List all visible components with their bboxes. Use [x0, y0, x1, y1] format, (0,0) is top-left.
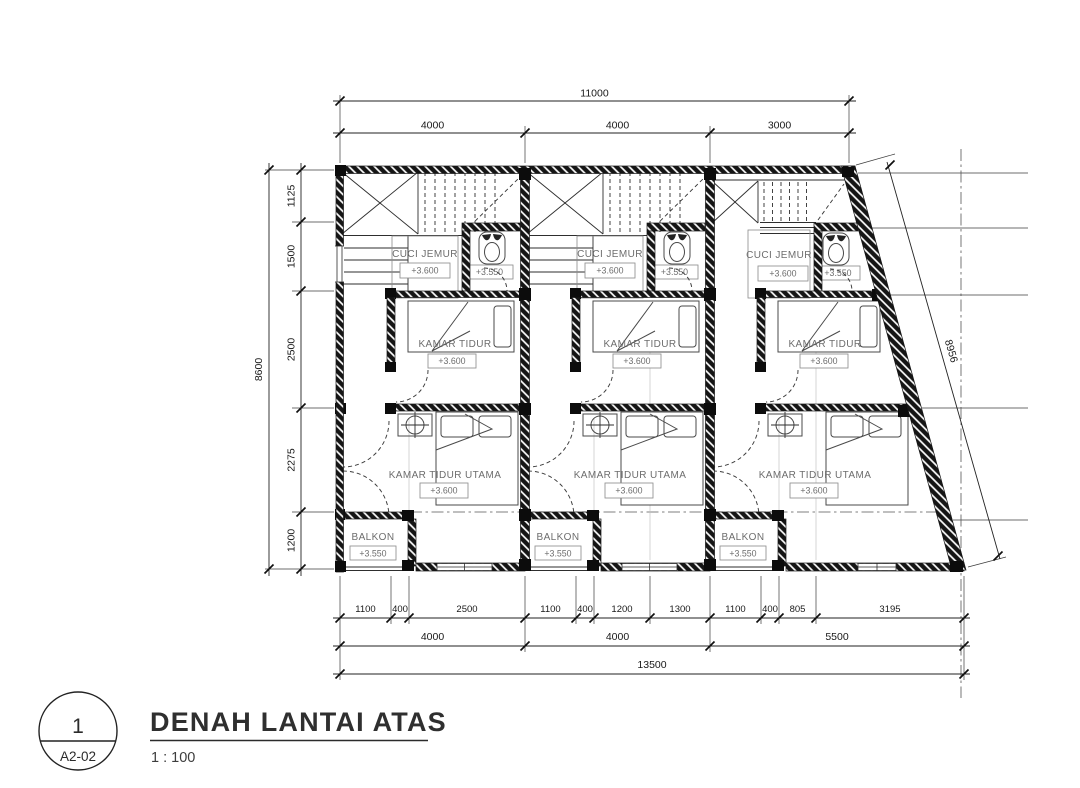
column-block — [335, 165, 346, 176]
dim-text-bottom-bay: 5500 — [825, 631, 849, 643]
column-block — [950, 561, 963, 572]
column-block — [772, 510, 784, 521]
wall — [712, 512, 778, 519]
dim-text-left-seg: 1125 — [286, 185, 298, 208]
wall — [575, 291, 710, 298]
wall — [760, 404, 908, 411]
column-block — [385, 403, 396, 414]
door-swing — [528, 421, 574, 467]
column-block — [842, 167, 854, 177]
wall — [572, 298, 580, 366]
wall — [706, 170, 715, 568]
wall — [647, 223, 705, 231]
door-swing — [713, 471, 759, 517]
squat-toilet-icon — [482, 234, 491, 240]
room-label-cuci-jemur: CUCI JEMUR — [746, 250, 812, 261]
dim-text-bottom-seg: 1100 — [725, 604, 745, 615]
dim-text-bottom-seg: 1300 — [669, 604, 690, 615]
level-text: +3.550 — [476, 267, 503, 277]
room-label-kamar-tidur: KAMAR TIDUR — [788, 339, 861, 350]
room-label-balkon: BALKON — [352, 532, 395, 543]
level-text: +3.600 — [615, 486, 642, 496]
column-block — [519, 559, 531, 571]
dim-text-left-seg: 1200 — [286, 529, 298, 553]
title-block: 1 A2-02 DENAH LANTAI ATAS 1 : 100 — [39, 692, 447, 770]
dim-text-bottom-bay: 4000 — [606, 631, 630, 643]
stair-direction-line — [818, 184, 844, 220]
room-label-cuci-jemur: CUCI JEMUR — [577, 249, 643, 260]
door-swing — [343, 421, 389, 467]
room-label-cuci-jemur: CUCI JEMUR — [392, 249, 458, 260]
room-label-balkon: BALKON — [722, 532, 765, 543]
level-text: +3.600 — [769, 269, 796, 279]
squat-toilet-icon — [829, 244, 844, 263]
level-text: +3.600 — [810, 356, 837, 366]
column-block — [704, 168, 716, 180]
level-text: +3.550 — [661, 267, 688, 277]
room-label-balkon: BALKON — [537, 532, 580, 543]
room-label-kamar-tidur-utama: KAMAR TIDUR UTAMA — [574, 470, 687, 481]
column-block — [519, 403, 531, 415]
drawing-sheet: CUCI JEMUR+3.600+3.550KAMAR TIDUR+3.600K… — [0, 0, 1080, 788]
wall — [814, 223, 858, 231]
squat-toilet-icon — [837, 235, 846, 241]
wall — [462, 223, 520, 231]
squat-toilet-icon — [485, 243, 500, 262]
dim-text-bottom-seg: 400 — [392, 604, 408, 615]
wall — [593, 519, 601, 566]
column-block — [519, 168, 531, 180]
column-block — [587, 560, 599, 571]
dim-text-bottom-seg: 400 — [762, 604, 778, 615]
wall — [778, 519, 786, 566]
window — [335, 246, 344, 282]
wall — [527, 512, 593, 519]
wall — [390, 404, 525, 411]
squat-toilet-icon — [826, 235, 835, 241]
column-block — [519, 288, 531, 300]
column-block — [704, 288, 716, 300]
room-label-kamar-tidur-utama: KAMAR TIDUR UTAMA — [389, 470, 502, 481]
drawing-title: DENAH LANTAI ATAS — [150, 707, 447, 737]
door-swing — [396, 370, 428, 402]
door-swing — [528, 471, 574, 517]
wall — [387, 298, 395, 366]
level-text: +3.550 — [824, 268, 851, 278]
room-label-kamar-tidur: KAMAR TIDUR — [603, 339, 676, 350]
wall — [336, 166, 855, 174]
wall — [342, 512, 408, 519]
dim-text-bottom-bay: 4000 — [421, 631, 445, 643]
column-block — [385, 362, 396, 372]
level-text: +3.600 — [411, 266, 438, 276]
door-swing — [343, 471, 389, 517]
dim-text-bottom-seg: 1100 — [355, 604, 375, 615]
column-block — [402, 510, 414, 521]
squat-toilet-icon — [678, 234, 687, 240]
wall — [575, 404, 710, 411]
dim-text-bottom-seg: 1200 — [611, 604, 632, 615]
squat-toilet-icon — [493, 234, 502, 240]
column-block — [704, 559, 716, 571]
dim-text-bottom-seg: 805 — [790, 604, 806, 615]
door-swing — [713, 421, 759, 467]
wall — [408, 519, 416, 566]
column-block — [402, 560, 414, 571]
wall — [760, 291, 880, 298]
column-block — [570, 403, 581, 414]
wall — [336, 166, 344, 572]
room-cuci-jemur — [748, 230, 810, 298]
detail-number: 1 — [72, 715, 84, 738]
dim-text-bottom-seg: 400 — [577, 604, 593, 615]
dimension-annotations: 1100040004000300011251500250022751200860… — [253, 88, 1003, 679]
rooms-and-furniture: CUCI JEMUR+3.600+3.550KAMAR TIDUR+3.600K… — [342, 172, 908, 571]
door-swing — [766, 370, 798, 402]
wall — [757, 298, 765, 366]
dim-text-top-total: 11000 — [580, 88, 609, 100]
column-block — [755, 403, 766, 414]
dim-text-bottom-seg: 3195 — [879, 604, 900, 615]
room-label-kamar-tidur: KAMAR TIDUR — [418, 339, 491, 350]
level-text: +3.550 — [359, 549, 386, 559]
squat-toilet-icon — [670, 243, 685, 262]
dim-text-top-bay: 4000 — [421, 120, 445, 132]
wall — [521, 170, 530, 568]
walls — [335, 165, 966, 572]
level-text: +3.600 — [623, 356, 650, 366]
column-block — [755, 362, 766, 372]
column-block — [587, 510, 599, 521]
column-block — [335, 561, 346, 572]
dim-text-bottom-seg: 1100 — [540, 604, 560, 615]
level-text: +3.550 — [544, 549, 571, 559]
column-block — [570, 362, 581, 372]
dim-text-bottom-seg: 2500 — [456, 604, 477, 615]
dim-text-bottom-total: 13500 — [637, 659, 666, 671]
level-text: +3.550 — [729, 549, 756, 559]
floor-plan-drawing: CUCI JEMUR+3.600+3.550KAMAR TIDUR+3.600K… — [0, 0, 1080, 788]
squat-toilet-icon — [667, 234, 676, 240]
column-block — [519, 509, 531, 521]
slanted-wall — [841, 166, 966, 570]
drawing-scale: 1 : 100 — [151, 750, 195, 766]
level-text: +3.600 — [596, 266, 623, 276]
sheet-code: A2-02 — [60, 749, 96, 764]
dim-text-left-total: 8600 — [253, 358, 265, 382]
door-swing — [581, 370, 613, 402]
level-text: +3.600 — [430, 486, 457, 496]
extension-line — [856, 154, 895, 165]
dim-tick — [886, 161, 895, 170]
dim-text-left-seg: 2275 — [286, 448, 298, 472]
dim-text-diagonal: 8956 — [942, 338, 960, 364]
dim-text-top-bay: 3000 — [768, 120, 792, 132]
level-text: +3.600 — [800, 486, 827, 496]
column-block — [704, 403, 716, 415]
wall — [390, 291, 525, 298]
level-text: +3.600 — [438, 356, 465, 366]
dim-text-left-seg: 2500 — [286, 338, 298, 362]
column-block — [772, 560, 784, 571]
dim-text-top-bay: 4000 — [606, 120, 630, 132]
room-label-kamar-tidur-utama: KAMAR TIDUR UTAMA — [759, 470, 872, 481]
dim-text-left-seg: 1500 — [286, 245, 298, 269]
wall — [814, 231, 822, 291]
wall — [462, 231, 470, 291]
column-block — [704, 509, 716, 521]
wall — [647, 231, 655, 291]
